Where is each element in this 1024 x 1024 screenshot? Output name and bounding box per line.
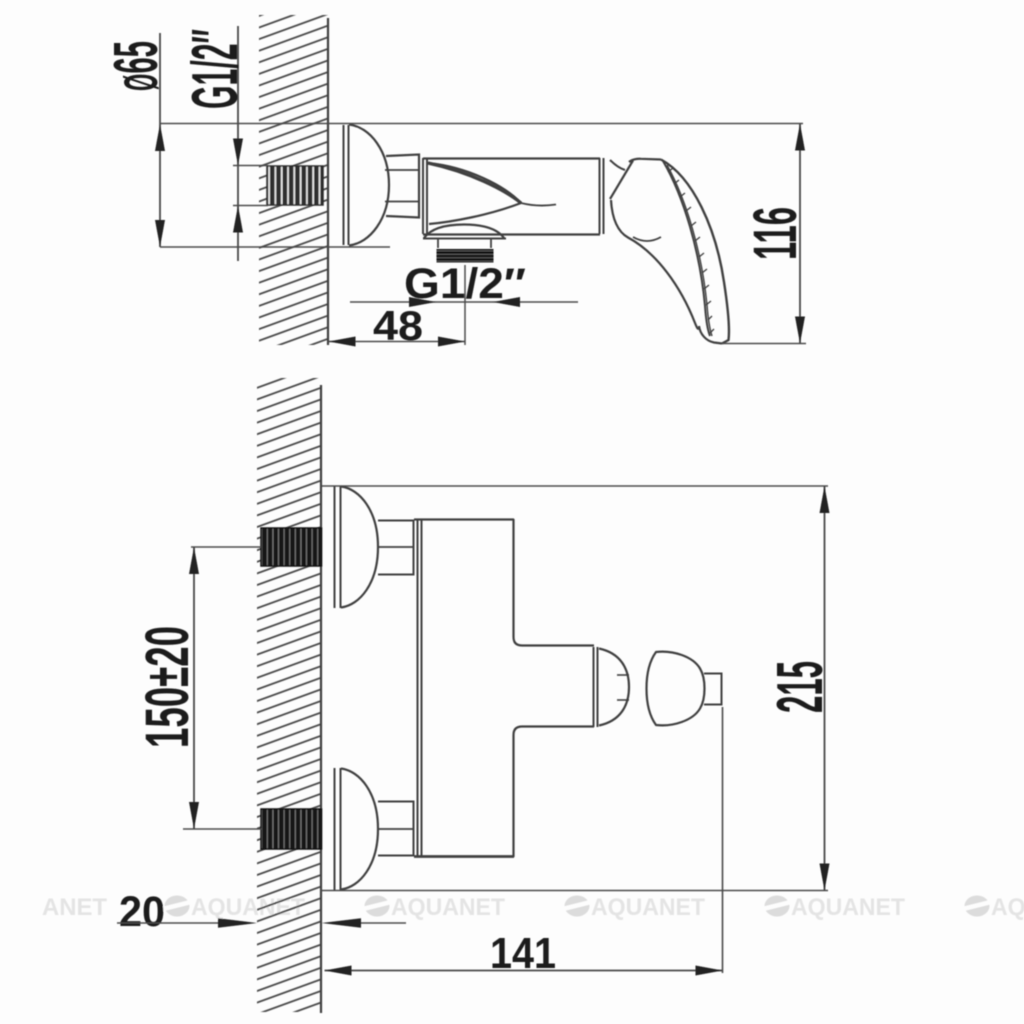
svg-text:116: 116: [741, 207, 809, 260]
svg-text:141: 141: [490, 929, 556, 978]
svg-text:150±20: 150±20: [133, 626, 201, 748]
svg-text:AQUANET: AQUANET: [591, 894, 705, 921]
svg-text:AQUANET: AQUANET: [991, 894, 1024, 921]
svg-text:AQUANET: AQUANET: [391, 894, 505, 921]
svg-text:215: 215: [763, 661, 836, 713]
svg-text:20: 20: [119, 888, 165, 936]
svg-text:G1/2″: G1/2″: [178, 29, 251, 109]
svg-text:AQUANET: AQUANET: [791, 894, 905, 921]
svg-text:ANET: ANET: [42, 894, 107, 921]
